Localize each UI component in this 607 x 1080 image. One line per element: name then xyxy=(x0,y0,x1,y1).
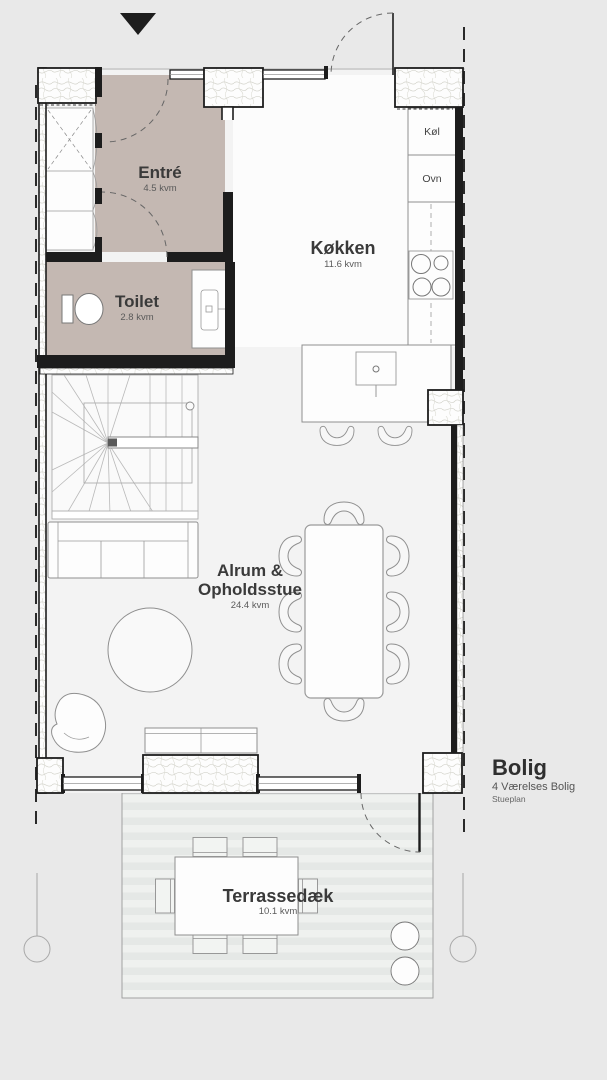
terrace-chair xyxy=(156,879,175,913)
wall-left xyxy=(39,68,46,793)
room-area-entre: 4.5 kvm xyxy=(143,183,176,194)
tree-symbol xyxy=(24,936,50,962)
wall-toilet-right xyxy=(225,262,235,357)
room-label-living-line2: Opholdsstue xyxy=(198,580,302,599)
wall-toilet-bottom xyxy=(37,355,235,368)
wall-right-upper xyxy=(455,107,463,390)
room-label-kitchen: Køkken xyxy=(310,238,375,258)
wall-entre-toilet-left xyxy=(46,252,102,262)
room-label-terrace: Terrassedæk xyxy=(223,886,335,906)
cooktop xyxy=(409,251,453,299)
wall-entre-right xyxy=(223,192,233,262)
entrance-door-jamb xyxy=(95,67,102,97)
room-area-toilet: 2.8 kvm xyxy=(120,312,153,323)
sofa xyxy=(48,522,198,578)
dining-table xyxy=(305,525,383,698)
terrace-chair xyxy=(243,935,277,954)
stair-handrail xyxy=(108,437,198,448)
room-label-toilet: Toilet xyxy=(115,292,159,311)
terrace-chair xyxy=(243,838,277,857)
stair-newel-post xyxy=(186,402,194,410)
fridge-label: Køl xyxy=(424,126,440,138)
floor-plan-canvas: Entré 4.5 kvm Toilet 2.8 kvm Køkken 11.6… xyxy=(0,0,607,1080)
wall-entre-toilet-right xyxy=(167,252,228,262)
stair-guard-rail xyxy=(52,511,198,519)
plan-title: Bolig xyxy=(492,755,547,780)
tree-symbol xyxy=(450,936,476,962)
wall-stub xyxy=(222,107,233,120)
plan-level: Stueplan xyxy=(492,794,526,804)
oven-label: Ovn xyxy=(422,173,441,185)
plan-subtitle: 4 Værelses Bolig xyxy=(492,781,575,793)
wall-pier-right xyxy=(428,390,463,425)
room-label-entre: Entré xyxy=(138,163,181,182)
wardrobe-closet xyxy=(46,108,97,250)
wall-pier-top-left xyxy=(38,68,96,103)
room-area-kitchen: 11.6 kvm xyxy=(324,259,362,270)
stairs xyxy=(52,375,198,519)
toilet-vanity xyxy=(192,270,227,348)
wall-pier-bottom-left xyxy=(37,758,63,793)
wall-pier-top-right xyxy=(395,68,463,107)
room-label-living-line1: Alrum & xyxy=(217,561,283,580)
room-area-living: 24.4 kvm xyxy=(231,600,270,611)
wall-pier-entre-kitchen xyxy=(204,68,263,107)
round-rug xyxy=(108,608,192,692)
terrace-chair xyxy=(193,935,227,954)
floor-plan-page: Entré 4.5 kvm Toilet 2.8 kvm Køkken 11.6… xyxy=(0,0,607,1080)
terrace-chair xyxy=(193,838,227,857)
planter-pot xyxy=(391,922,419,950)
room-area-terrace: 10.1 kvm xyxy=(259,906,298,917)
toilet-wc xyxy=(62,294,103,325)
wall-right-lower xyxy=(451,425,457,755)
wall-pier-bottom-center xyxy=(143,755,258,793)
sideboard xyxy=(145,728,257,753)
planter-pot xyxy=(391,957,419,985)
wall-pier-bottom-right xyxy=(423,753,462,793)
